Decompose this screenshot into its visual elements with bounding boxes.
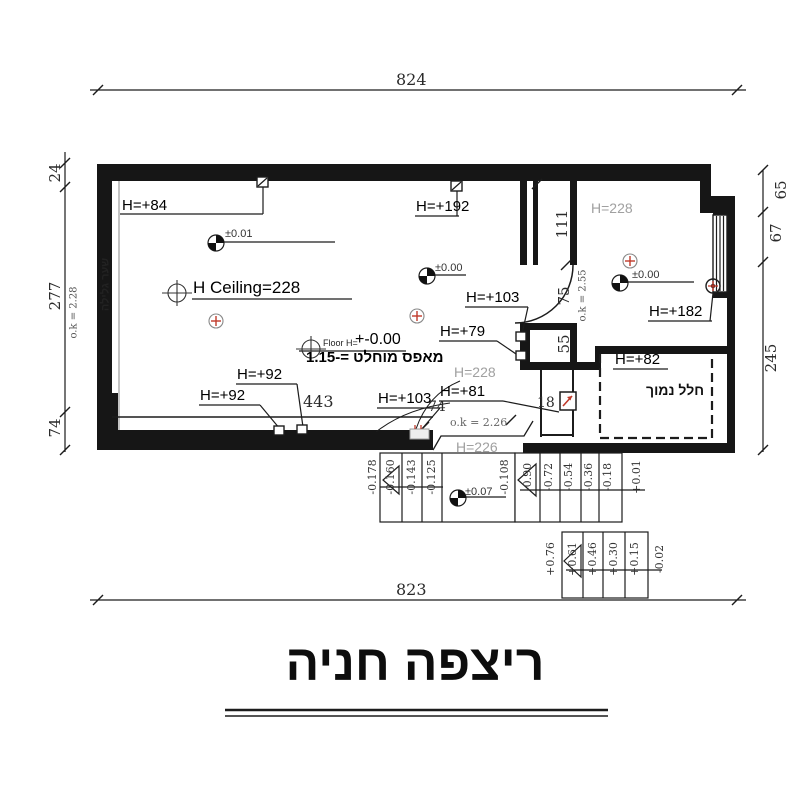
label-h192: H=+192	[416, 199, 469, 214]
stair-upper-3: -0.54	[563, 442, 575, 512]
stair-lower-1: +0.61	[567, 524, 579, 594]
dim-bottom-823: 823	[396, 582, 427, 598]
dim-left-74: 74	[47, 398, 63, 458]
label-h79: H=+79	[440, 324, 485, 339]
label-h92-upper: H=+92	[237, 367, 282, 382]
label-mid-h228: H=228	[454, 365, 496, 379]
label-h84: H=+84	[122, 198, 167, 213]
dim-55: 55	[556, 314, 572, 374]
label-h103-bottom: H=+103	[378, 391, 431, 406]
dim-left-24: 24	[47, 143, 63, 203]
dim-443: 443	[303, 394, 334, 410]
label-h92-lower: H=+92	[200, 388, 245, 403]
ramp-level-2: -0.160	[385, 442, 397, 512]
dim-111: 111	[554, 194, 570, 254]
ramp-level-3: -0.143	[406, 442, 418, 512]
stair-upper-1: -0.90	[522, 442, 534, 512]
survey-001: ±0.01	[225, 229, 252, 240]
stair-upper-4: -0.36	[583, 442, 595, 512]
stair-upper-2: -0.72	[543, 442, 555, 512]
dim-18: 18	[537, 396, 555, 410]
dim-left-ok228: o.k = 2.28	[69, 273, 80, 353]
dim-left-277: 277	[47, 266, 63, 326]
label-h103-right: H=+103	[466, 290, 519, 305]
stair-lower-start: +0.76	[545, 524, 557, 594]
label-mid-h226: H=226	[456, 440, 498, 454]
survey-007: ±0.07	[465, 487, 492, 498]
dim-ok255: o.k = 2.55	[578, 256, 589, 336]
stair-lower-3: +0.30	[608, 524, 620, 594]
survey-000-room: ±0.00	[632, 270, 659, 281]
rolling-gate-label: שער גלילה	[100, 235, 113, 335]
label-ceiling-h228: H Ceiling=228	[193, 279, 300, 296]
floor-note-value: +-0.00	[355, 332, 401, 348]
dim-top-824: 824	[396, 72, 427, 88]
ramp-level-5: -0.108	[499, 442, 511, 512]
ramp-level-1: -0.178	[367, 442, 379, 512]
label-h81: H=+81	[440, 384, 485, 399]
floor-note-absolute: מאפס מוחלט =-1.15	[306, 350, 443, 365]
label-h182: H=+182	[649, 304, 702, 319]
dim-right-67: 67	[768, 203, 784, 263]
stair-lower-4: +0.15	[629, 524, 641, 594]
floor-note-prefix: Floor H=	[323, 339, 358, 348]
room-low-space-label: חלל נמוך	[646, 383, 704, 397]
survey-000-main: ±0.00	[435, 263, 462, 274]
stair-upper-end: +0.01	[631, 442, 643, 512]
label-h82: H=+82	[615, 352, 660, 367]
ramp-level-4: -0.125	[426, 442, 438, 512]
label-room-h228: H=228	[591, 201, 633, 215]
stair-lower-end: -0.02	[654, 524, 666, 594]
stair-upper-5: -0.18	[602, 442, 614, 512]
dim-ok226: o.k = 2.26	[450, 417, 507, 428]
drawing-title: ריצפה חניה	[215, 638, 615, 688]
dim-right-245: 245	[763, 328, 779, 388]
stair-lower-2: +0.46	[587, 524, 599, 594]
floorplan-page: 824 823 24 277 o.k = 2.28 74 65 67 245 1…	[0, 0, 800, 800]
